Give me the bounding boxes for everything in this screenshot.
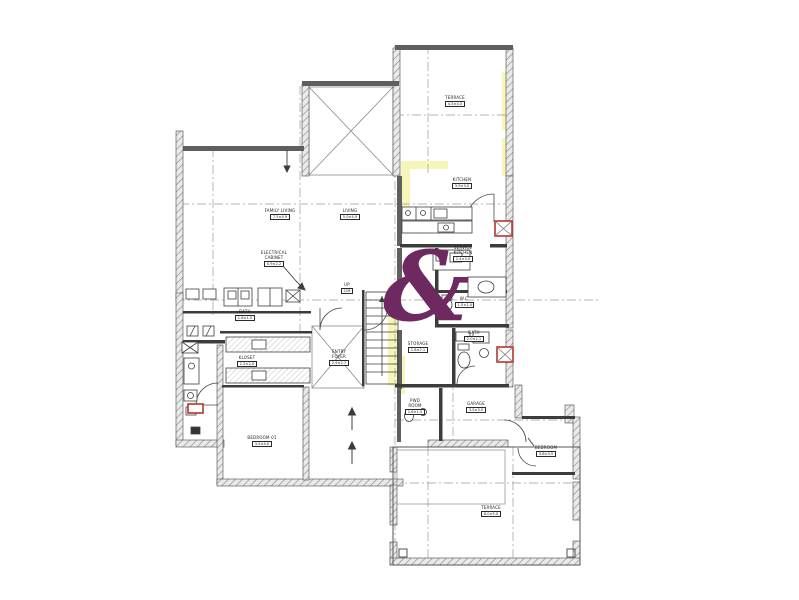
room-label-bedroom-01: BEDROOM 01 3.5×4.0: [242, 435, 282, 447]
room-label-entry-foyer: ENTRY FOYER 2.9×2.7: [326, 349, 352, 366]
room-label-kloset: KLOSET 2.5×2.0: [234, 355, 260, 367]
room-label-electrical-cabinet: ELECTRICAL CABINET 0.9×2.2: [257, 250, 291, 267]
room-name: FAMILY LIVING: [257, 208, 303, 213]
room-label-family-living: FAMILY LIVING 7.5×4.9: [257, 208, 303, 220]
room-label-bedroom-right: BEDROOM 3.6×3.5: [531, 445, 561, 457]
floorplan-canvas: FAMILY LIVING 7.5×4.9 LIVING 5.0×4.9 TER…: [0, 0, 799, 600]
room-dims: 7.5×4.9: [270, 214, 289, 220]
void-cross-top: [309, 87, 393, 175]
room-label-stair-up: UP 21R: [339, 282, 355, 294]
room-label-terrace-top: TERRACE 4.5×4.0: [438, 95, 472, 107]
direction-arrows: [349, 408, 356, 464]
room-label-kitchen: KITCHEN 3.9×3.0: [447, 177, 477, 189]
exterior-walls: [176, 48, 580, 565]
room-label-bath-2: BATH 1.8×1.5: [235, 309, 255, 321]
room-label-garage: GARAGE 3.5×3.0: [463, 401, 489, 413]
room-label-pwd-room: PWD ROOM 1.6×1.5: [405, 398, 425, 415]
room-label-terrace-bottom: TERRACE 6.0×5.0: [476, 505, 506, 517]
room-label-living: LIVING 5.0×4.9: [335, 208, 365, 220]
watermark-ampersand: &: [383, 239, 470, 335]
